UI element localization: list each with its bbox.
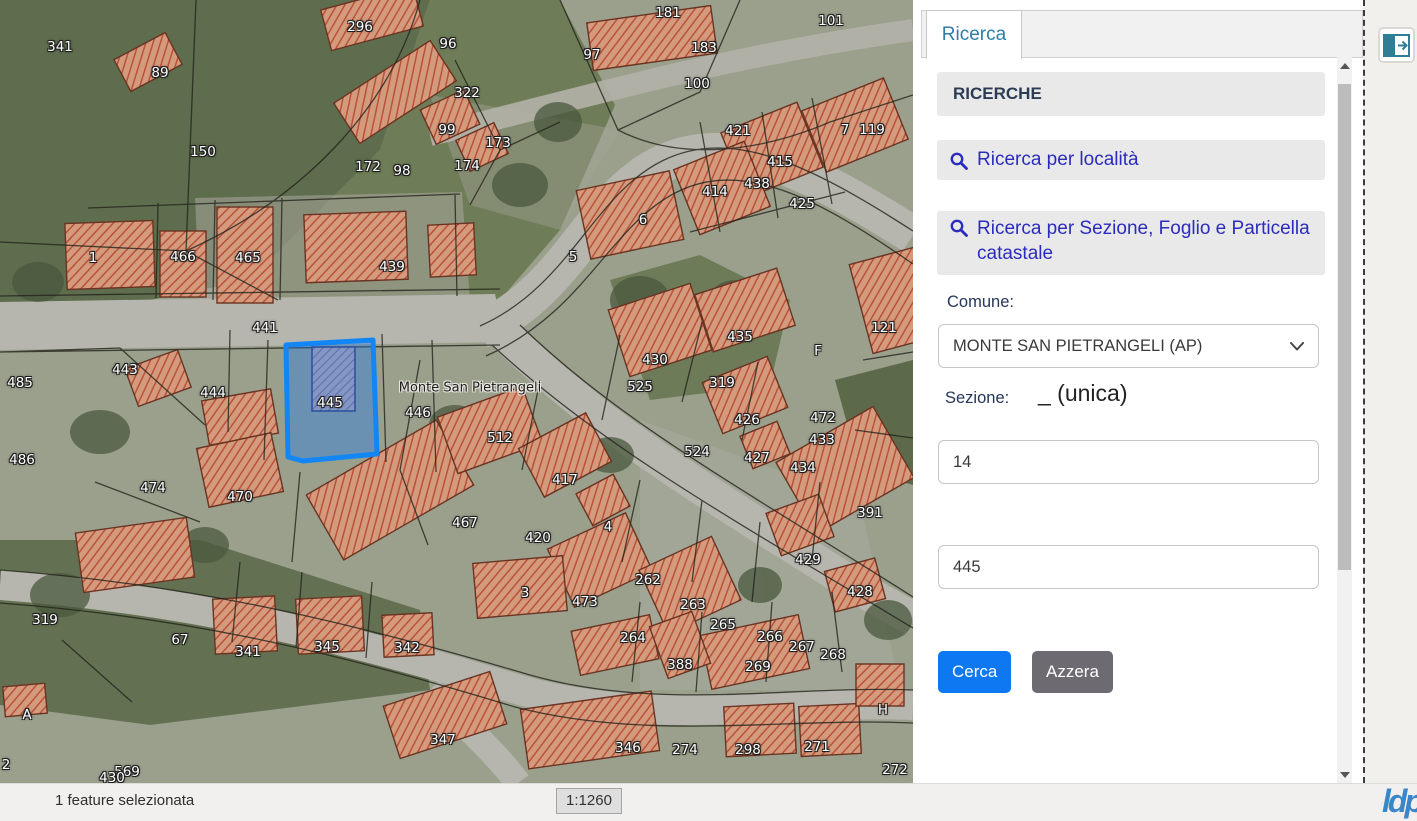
scroll-up-arrow-icon[interactable] bbox=[1337, 57, 1352, 74]
selection-status: 1 feature selezionata bbox=[55, 792, 194, 809]
panel-scrollbar[interactable] bbox=[1337, 57, 1352, 783]
search-by-parcel-section[interactable]: Ricerca per Sezione, Foglio e Particella… bbox=[937, 211, 1325, 275]
scale-indicator[interactable]: 1:1260 bbox=[556, 788, 622, 814]
particella-input[interactable] bbox=[938, 545, 1319, 589]
selected-parcel[interactable] bbox=[286, 340, 377, 461]
search-locality-label: Ricerca per località bbox=[977, 149, 1139, 171]
tab-ricerca-label: Ricerca bbox=[942, 24, 1006, 46]
search-by-locality-section[interactable]: Ricerca per località bbox=[937, 140, 1325, 180]
chevron-down-icon bbox=[1290, 342, 1304, 351]
map-graphics bbox=[0, 0, 913, 783]
foglio-input[interactable] bbox=[938, 440, 1319, 484]
scroll-down-arrow-icon[interactable] bbox=[1337, 766, 1352, 783]
scrollbar-thumb[interactable] bbox=[1338, 84, 1351, 570]
ldp-logo: ldp bbox=[1382, 783, 1417, 820]
search-icon bbox=[949, 218, 969, 238]
comune-select[interactable]: MONTE SAN PIETRANGELI (AP) bbox=[938, 324, 1319, 368]
search-panel: Ricerca RICERCHE Ricerca per località Ri… bbox=[913, 0, 1363, 783]
webgis-app: 3418929696971811831011003229917317417298… bbox=[0, 0, 1417, 821]
comune-label: Comune: bbox=[947, 293, 1014, 312]
panel-arrow-icon bbox=[1383, 34, 1410, 57]
ricerche-header: RICERCHE bbox=[937, 72, 1325, 116]
tab-ricerca[interactable]: Ricerca bbox=[926, 10, 1022, 59]
status-bar: 1 feature selezionata 1:1260 ldp bbox=[0, 783, 1417, 821]
azzera-button[interactable]: Azzera bbox=[1032, 651, 1113, 693]
search-icon bbox=[949, 151, 969, 171]
cerca-button[interactable]: Cerca bbox=[938, 651, 1011, 693]
collapsed-side-strip bbox=[1363, 0, 1417, 783]
sezione-label: Sezione: bbox=[945, 389, 1009, 408]
expand-panel-button[interactable] bbox=[1378, 27, 1415, 63]
sezione-value: _ (unica) bbox=[1038, 380, 1127, 407]
map-canvas[interactable]: 3418929696971811831011003229917317417298… bbox=[0, 0, 913, 783]
search-cadastral-label: Ricerca per Sezione, Foglio e Particella… bbox=[977, 216, 1325, 266]
comune-select-value: MONTE SAN PIETRANGELI (AP) bbox=[953, 337, 1202, 356]
